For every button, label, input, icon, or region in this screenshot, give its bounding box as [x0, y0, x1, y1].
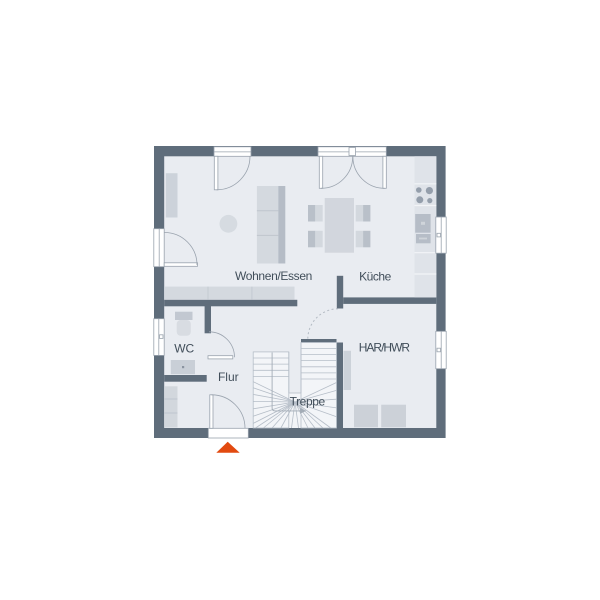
svg-text:Flur: Flur — [218, 370, 239, 384]
svg-text:HAR/HWR: HAR/HWR — [359, 340, 411, 354]
svg-text:Küche: Küche — [359, 269, 392, 283]
svg-text:Treppe: Treppe — [290, 395, 326, 409]
svg-text:Wohnen/Essen: Wohnen/Essen — [235, 269, 312, 283]
svg-text:WC: WC — [174, 341, 194, 355]
